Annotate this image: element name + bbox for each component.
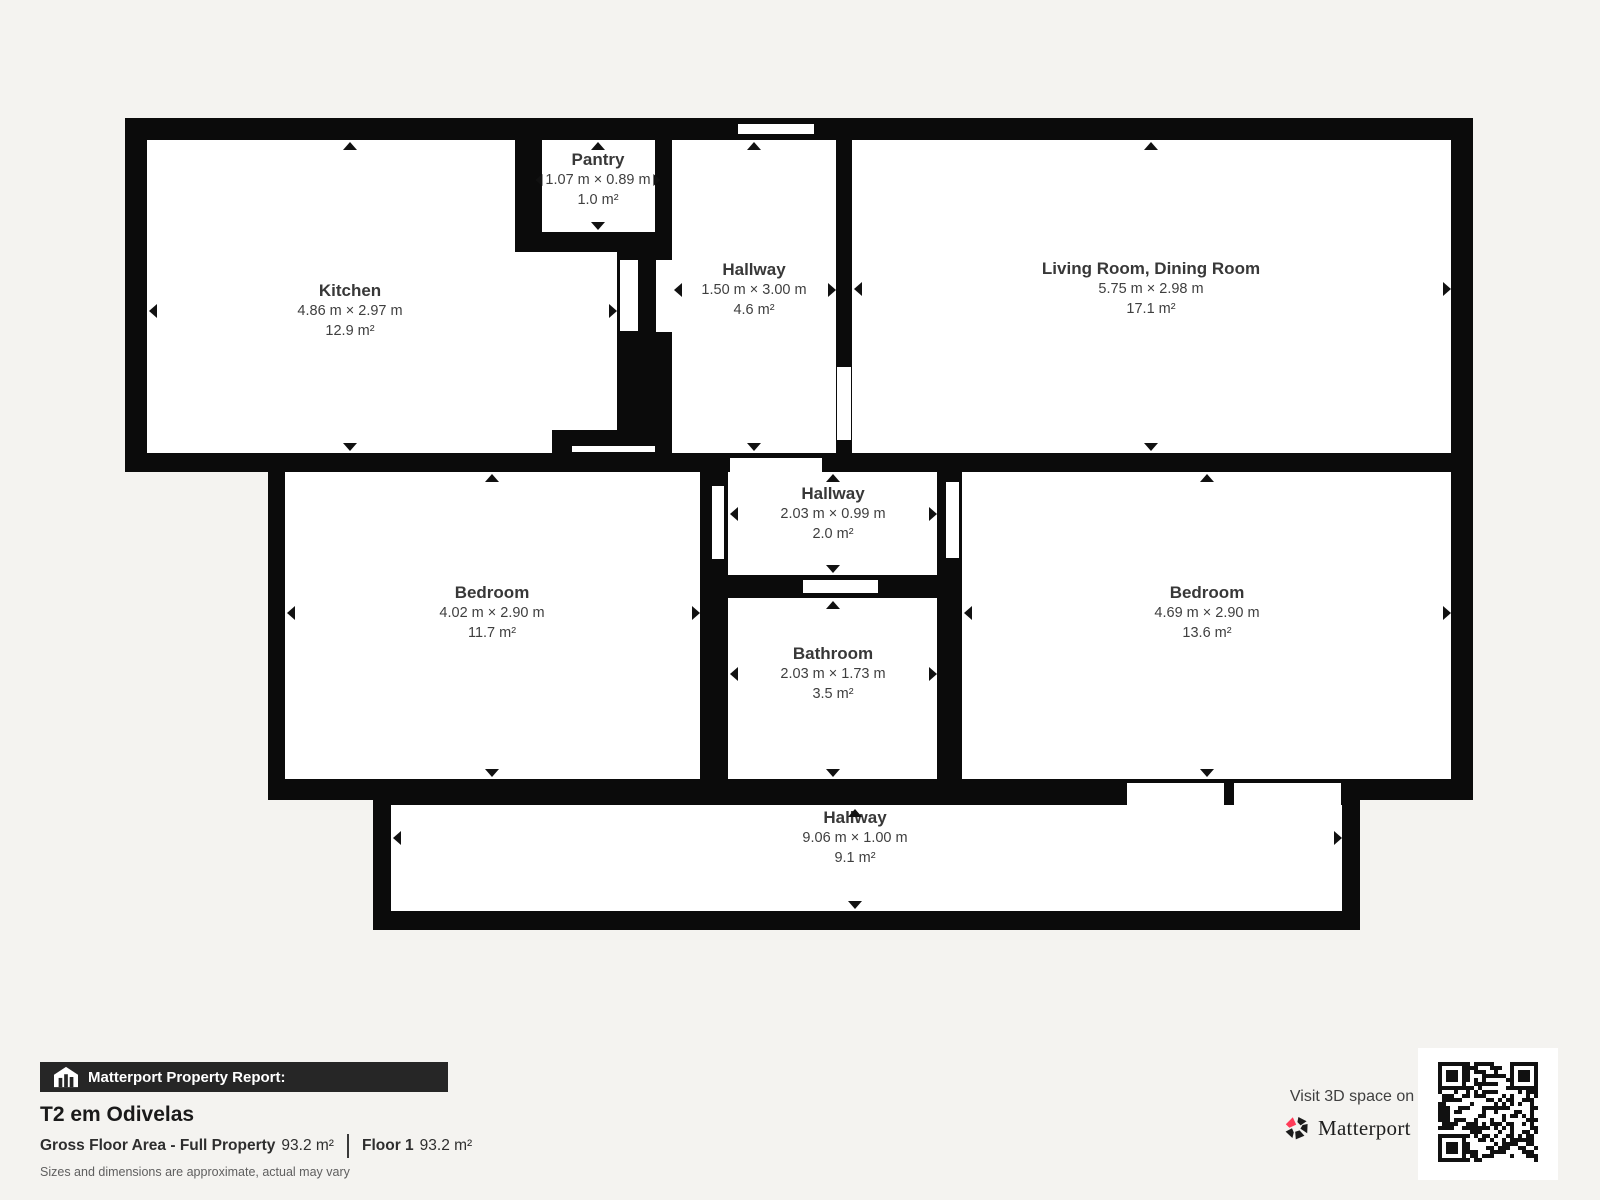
door-opening — [738, 124, 814, 134]
room-label-living-dining: Living Room, Dining Room 5.75 m × 2.98 m… — [1042, 259, 1260, 319]
dimension-arrow-up-icon — [848, 809, 862, 817]
door-opening — [803, 580, 878, 593]
dimension-arrow-down-icon — [747, 443, 761, 451]
door-opening — [730, 458, 822, 472]
room-dimensions: 2.03 m × 0.99 m — [780, 504, 885, 524]
dimension-arrow-down-icon — [826, 565, 840, 573]
dimension-arrow-left-icon — [149, 304, 157, 318]
dimension-arrow-down-icon — [1200, 769, 1214, 777]
dimension-arrow-right-icon — [1443, 282, 1451, 296]
dimension-arrow-down-icon — [826, 769, 840, 777]
room-label-bedroom-left: Bedroom 4.02 m × 2.90 m 11.7 m² — [439, 583, 544, 643]
room-area: 17.1 m² — [1042, 299, 1260, 319]
dimension-arrow-right-icon — [1443, 606, 1451, 620]
dimension-arrow-right-icon — [828, 283, 836, 297]
divider — [347, 1134, 349, 1158]
dimension-arrow-down-icon — [1144, 443, 1158, 451]
door-opening — [837, 367, 851, 440]
house-chart-icon — [54, 1066, 78, 1088]
room-name: Bedroom — [439, 583, 544, 603]
dimension-arrow-right-icon — [929, 667, 937, 681]
dimension-arrow-right-icon — [1334, 831, 1342, 845]
room-label-kitchen: Kitchen 4.86 m × 2.97 m 12.9 m² — [297, 281, 402, 341]
door-opening — [712, 486, 724, 559]
room-label-hallway-top: Hallway 1.50 m × 3.00 m 4.6 m² — [701, 260, 806, 320]
room-name: Hallway — [780, 484, 885, 504]
floor-label: Floor 1 — [362, 1137, 414, 1155]
wall-pantry-bottom — [515, 232, 655, 252]
dimension-arrow-up-icon — [826, 601, 840, 609]
room-area: 3.5 m² — [780, 684, 885, 704]
door-opening — [1127, 783, 1224, 805]
qr-card — [1418, 1048, 1558, 1180]
room-dimensions: 5.75 m × 2.98 m — [1042, 279, 1260, 299]
dimension-arrow-up-icon — [747, 142, 761, 150]
dimension-arrow-up-icon — [826, 474, 840, 482]
room-area: 12.9 m² — [297, 321, 402, 341]
room-label-hallway-bottom: Hallway 9.06 m × 1.00 m 9.1 m² — [802, 808, 907, 868]
door-opening — [656, 260, 672, 332]
dimension-arrow-right-icon — [929, 507, 937, 521]
gross-floor-area-label: Gross Floor Area - Full Property — [40, 1137, 275, 1155]
dimension-arrow-down-icon — [848, 901, 862, 909]
gross-floor-area-value: 93.2 m² — [281, 1137, 334, 1155]
room-dimensions: 1.07 m × 0.89 m — [535, 170, 660, 190]
dimension-arrow-left-icon — [730, 667, 738, 681]
dimension-arrow-left-icon — [730, 507, 738, 521]
room-name: Kitchen — [297, 281, 402, 301]
room-label-bathroom: Bathroom 2.03 m × 1.73 m 3.5 m² — [780, 644, 885, 704]
matterport-floor-plan-report: { "rooms": [ {"name": "Kitchen", "dims":… — [0, 0, 1600, 1200]
room-label-pantry: Pantry 1.07 m × 0.89 m 1.0 m² — [535, 150, 660, 210]
dimension-arrow-up-icon — [343, 142, 357, 150]
dimension-arrow-up-icon — [591, 142, 605, 150]
door-opening — [572, 446, 655, 452]
dimension-arrow-right-icon — [609, 304, 617, 318]
door-opening — [620, 260, 638, 331]
matterport-pinwheel-icon — [1283, 1114, 1311, 1142]
room-dimensions: 4.69 m × 2.90 m — [1154, 603, 1259, 623]
dimension-arrow-down-icon — [485, 769, 499, 777]
report-title-bar: Matterport Property Report: — [40, 1062, 448, 1092]
room-area: 4.6 m² — [701, 300, 806, 320]
dimension-arrow-up-icon — [485, 474, 499, 482]
report-bar-label: Matterport Property Report: — [88, 1069, 286, 1086]
room-dimensions: 4.86 m × 2.97 m — [297, 301, 402, 321]
dimension-arrow-left-icon — [287, 606, 295, 620]
dimension-arrow-down-icon — [343, 443, 357, 451]
room-name: Bedroom — [1154, 583, 1259, 603]
disclaimer-text: Sizes and dimensions are approximate, ac… — [40, 1165, 350, 1179]
room-dimensions: 4.02 m × 2.90 m — [439, 603, 544, 623]
dimension-arrow-left-icon — [674, 283, 682, 297]
floor-area-summary: Gross Floor Area - Full Property 93.2 m²… — [40, 1134, 472, 1158]
dimension-arrow-right-icon — [692, 606, 700, 620]
room-area: 11.7 m² — [439, 623, 544, 643]
room-area: 2.0 m² — [780, 524, 885, 544]
dimension-arrow-left-icon — [535, 174, 542, 186]
matterport-wordmark: Matterport — [1318, 1116, 1411, 1141]
room-name: Hallway — [701, 260, 806, 280]
room-area: 1.0 m² — [535, 190, 660, 210]
dimension-arrow-left-icon — [393, 831, 401, 845]
room-dimensions: 1.50 m × 3.00 m — [701, 280, 806, 300]
floor-plan: Kitchen 4.86 m × 2.97 m 12.9 m² Pantry 1… — [0, 0, 1600, 1200]
dimension-arrow-right-icon — [654, 174, 661, 186]
room-label-bedroom-right: Bedroom 4.69 m × 2.90 m 13.6 m² — [1154, 583, 1259, 643]
room-label-hallway-middle: Hallway 2.03 m × 0.99 m 2.0 m² — [780, 484, 885, 544]
dimension-arrow-up-icon — [1144, 142, 1158, 150]
dimension-arrow-up-icon — [1200, 474, 1214, 482]
property-title: T2 em Odivelas — [40, 1103, 194, 1127]
qr-code — [1438, 1062, 1538, 1167]
room-name: Living Room, Dining Room — [1042, 259, 1260, 279]
dimension-arrow-left-icon — [964, 606, 972, 620]
dimension-arrow-down-icon — [591, 222, 605, 230]
room-name: Bathroom — [780, 644, 885, 664]
floor-value: 93.2 m² — [420, 1137, 473, 1155]
door-opening — [1234, 783, 1341, 805]
room-area: 9.1 m² — [802, 848, 907, 868]
room-area: 13.6 m² — [1154, 623, 1259, 643]
room-name: Pantry — [535, 150, 660, 170]
door-opening — [946, 482, 959, 558]
room-dimensions: 9.06 m × 1.00 m — [802, 828, 907, 848]
dimension-arrow-left-icon — [854, 282, 862, 296]
room-dimensions: 2.03 m × 1.73 m — [780, 664, 885, 684]
